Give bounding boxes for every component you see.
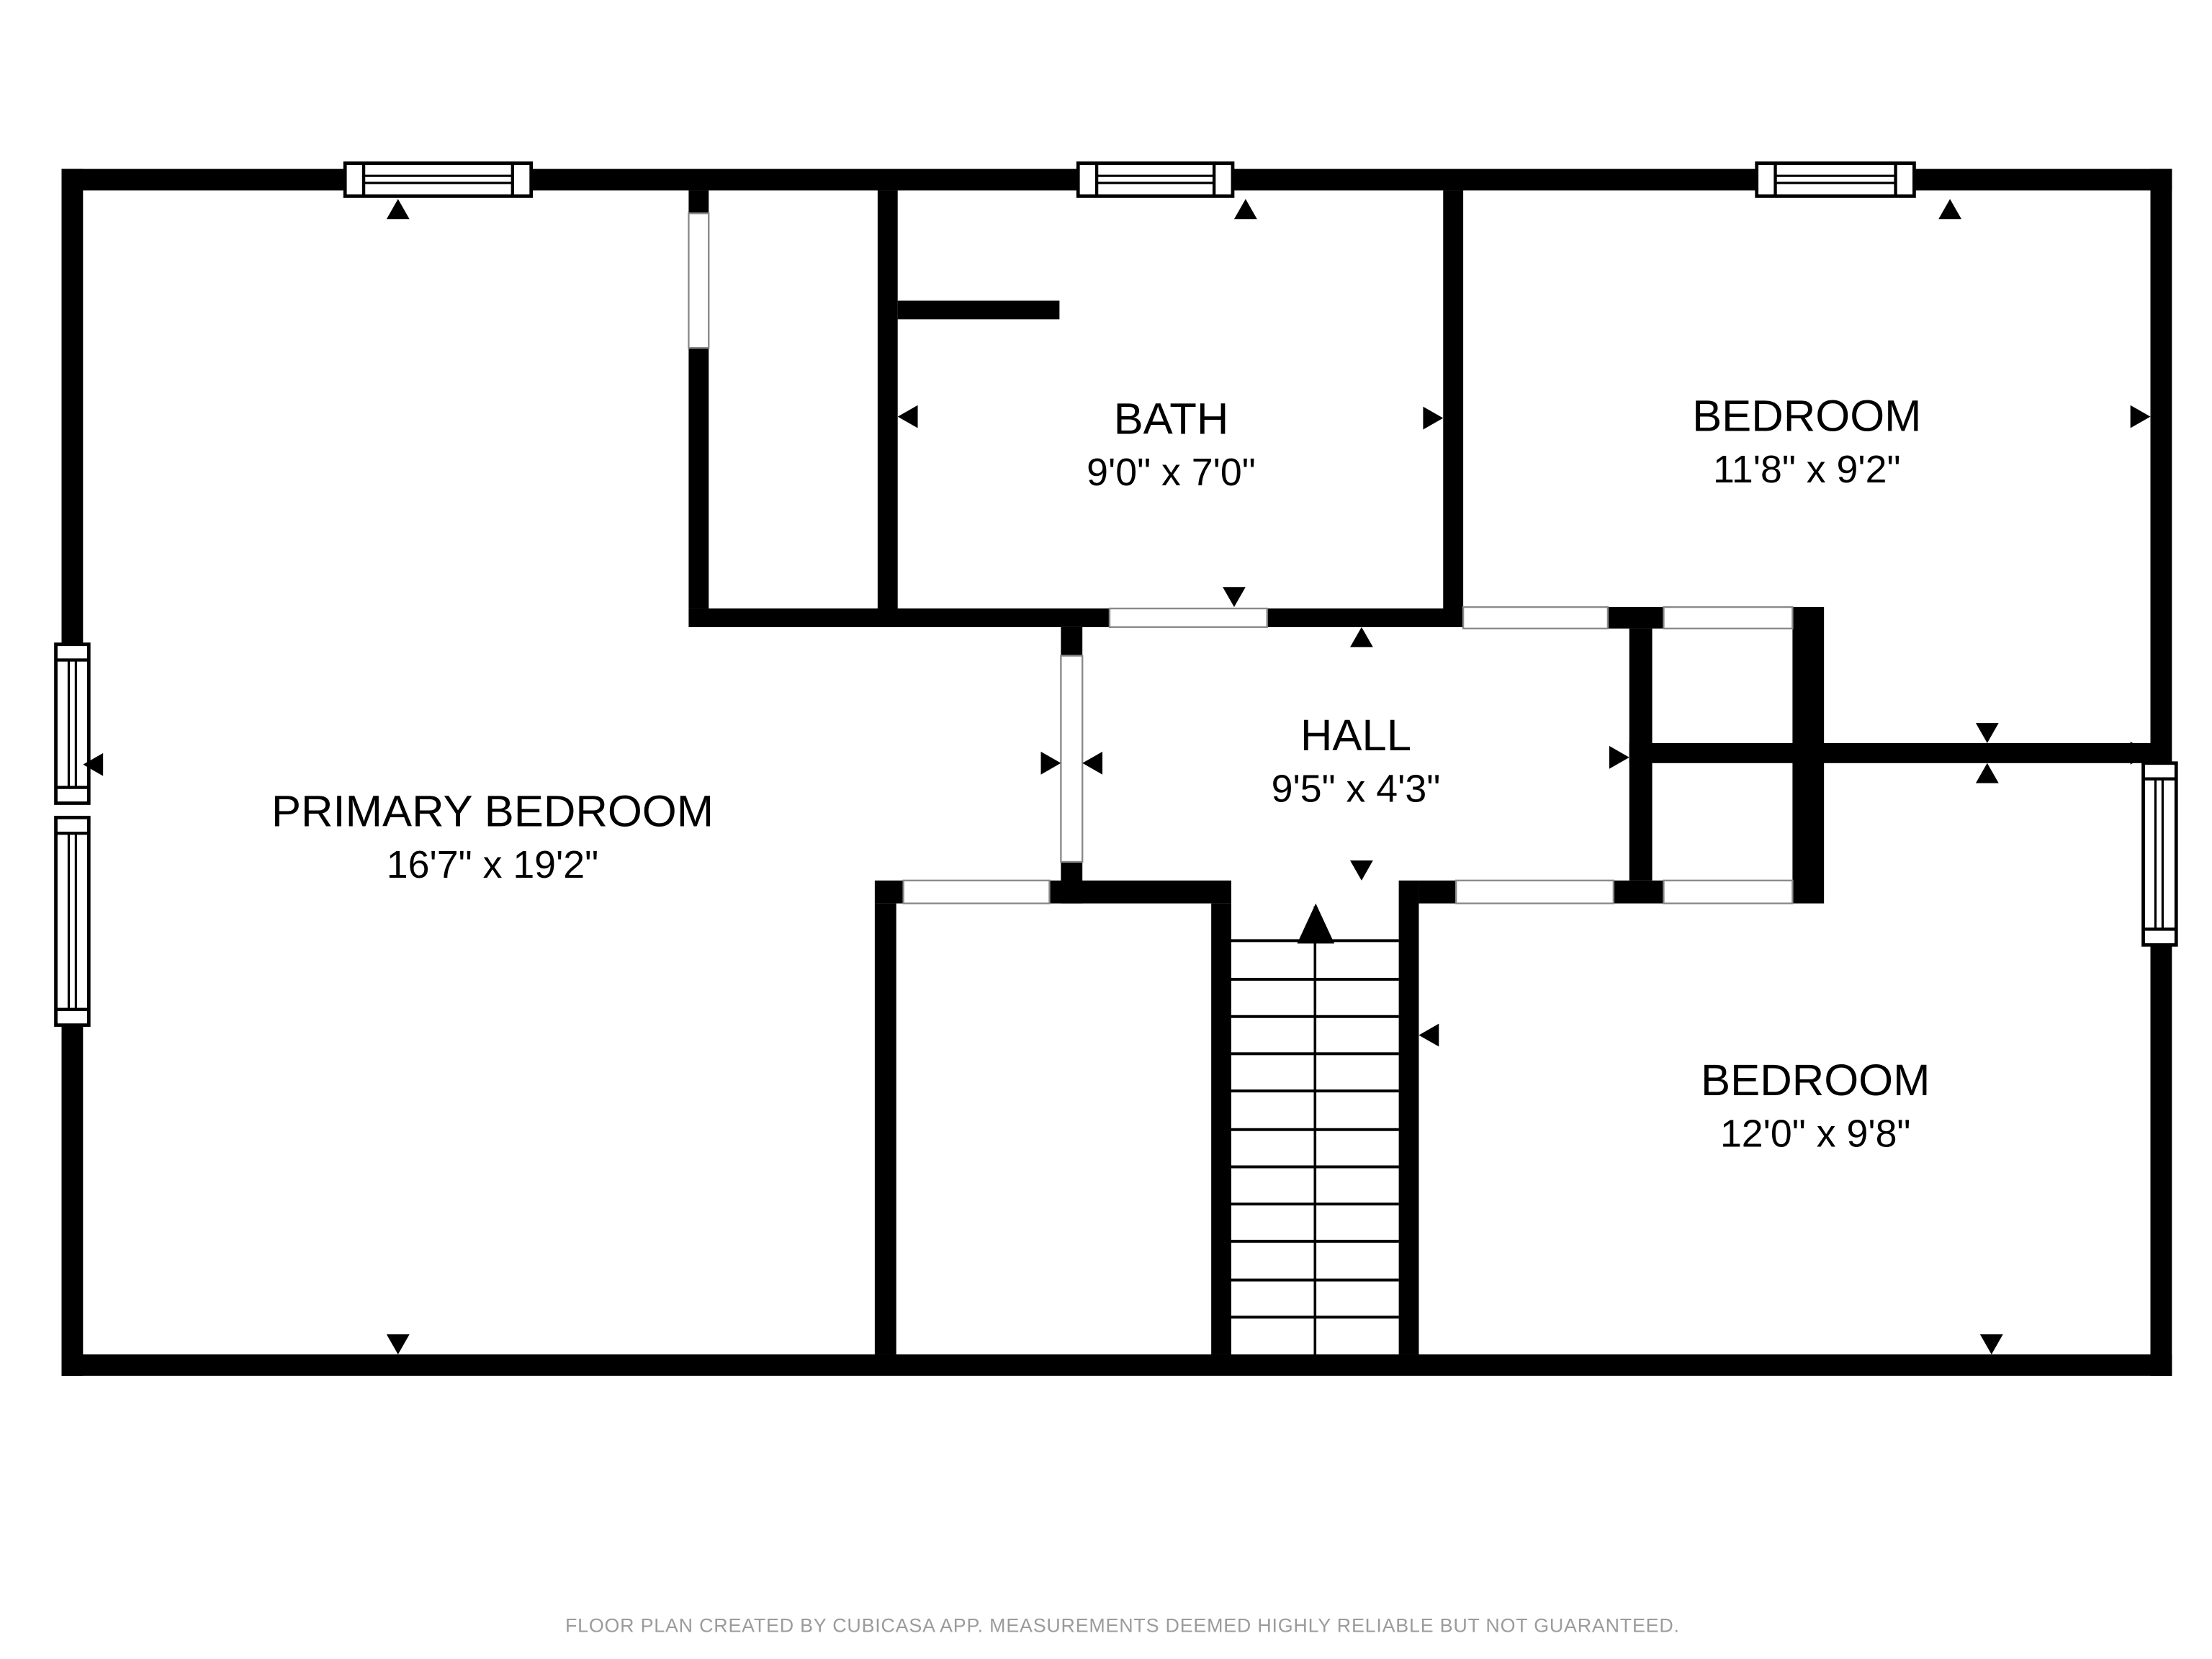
room-dims-bath: 9'0" x 7'0" — [1087, 451, 1256, 494]
door-openings — [688, 213, 1792, 903]
door-marker-icon — [1423, 407, 1443, 430]
closet1-door-opening — [688, 213, 709, 348]
door-marker-icon — [1223, 587, 1246, 607]
wall-bedrooms-divider — [1629, 743, 2151, 763]
wall-primary-door-jamb-top — [1061, 627, 1082, 656]
window-marker-icon — [1234, 199, 1257, 219]
wall-pier-bedroom1-closet — [1608, 607, 1664, 629]
closet-top-door-opening — [1663, 607, 1792, 629]
window-bedroom-bottom-right — [2144, 763, 2177, 945]
wall-stairwell-right — [1399, 881, 1419, 1354]
stairs-direction-arrow-icon — [1297, 904, 1334, 944]
window-frame — [56, 817, 89, 1025]
room-dims-bedroom-bottom: 12'0" x 9'8" — [1720, 1112, 1911, 1156]
wall-hall-bottom-b — [1049, 881, 1231, 904]
room-dims-hall: 9'5" x 4'3" — [1272, 767, 1441, 810]
door-marker-icon — [1041, 752, 1061, 775]
window-marker-icon — [387, 199, 410, 219]
bedroom-top-door-opening — [1463, 607, 1608, 629]
wall-marker-icon — [1976, 763, 1999, 783]
wall-hall-bottom-c — [1419, 881, 1456, 904]
room-label-primary-bedroom: PRIMARY BEDROOM — [271, 786, 714, 836]
room-label-bath: BATH — [1114, 394, 1229, 444]
room-label-bedroom-top: BEDROOM — [1692, 391, 1921, 441]
room-dims-bedroom-top: 11'8" x 9'2" — [1713, 448, 1901, 491]
door-marker-icon — [1350, 860, 1373, 881]
window-frame — [345, 163, 531, 197]
wall-marker-icon — [1419, 1024, 1439, 1047]
wall-bath-bedroom-divider — [1443, 190, 1463, 626]
window-bath — [1078, 163, 1233, 197]
window-frame — [2144, 763, 2177, 945]
wall-marker-icon — [1980, 1334, 2003, 1354]
window-primary-top — [345, 163, 531, 197]
wall-bath-nook-stub — [898, 301, 1060, 320]
door-marker-icon — [1350, 627, 1373, 647]
floor-plan-page: PRIMARY BEDROOM 16'7" x 19'2" BATH 9'0" … — [0, 0, 2212, 1659]
wall-closet1-bath-divider — [878, 190, 898, 626]
wall-marker-icon — [387, 1334, 410, 1354]
door-marker-icon — [1609, 746, 1629, 769]
wall-closet1-left-top-stub — [688, 190, 709, 213]
wall-pier-bedroom2-closet — [1614, 881, 1664, 904]
exterior-walls — [62, 169, 2172, 1376]
room-label-bedroom-bottom: BEDROOM — [1701, 1056, 1930, 1105]
wall-hall-bottom-a — [875, 881, 904, 904]
door-marker-icon — [1082, 752, 1102, 775]
closet-bottom-door-opening — [1663, 881, 1792, 904]
window-frame — [56, 644, 89, 804]
bath-door-opening — [1110, 608, 1267, 627]
window-frame — [1757, 163, 1915, 197]
footer-disclaimer: FLOOR PLAN CREATED BY CUBICASA APP. MEAS… — [565, 1615, 1680, 1637]
wall-bath-hall-left — [688, 608, 1110, 627]
wall-marker-icon — [2131, 405, 2151, 428]
wall-stairwell-left — [1211, 904, 1231, 1354]
wall-marker-icon — [1976, 723, 1999, 743]
window-frame — [1078, 163, 1233, 197]
primary-bedroom-door-opening — [1061, 656, 1082, 862]
window-bedroom-top — [1757, 163, 1915, 197]
bedroom-bottom-door-opening — [1456, 881, 1614, 904]
window-primary-left — [56, 644, 89, 1025]
walkin-closet-door-opening — [904, 881, 1050, 904]
door-marker-icon — [898, 405, 918, 428]
wall-closet1-left-lower — [688, 348, 709, 608]
plan-markers — [83, 199, 2150, 1354]
window-marker-icon — [1938, 199, 1961, 219]
wall-bath-hall-right — [1267, 608, 1463, 627]
wall-walkin-closet-left — [875, 904, 896, 1354]
wall-exterior-bottom — [62, 1354, 2172, 1376]
floor-plan-svg: PRIMARY BEDROOM 16'7" x 19'2" BATH 9'0" … — [0, 0, 2212, 1659]
staircase — [1231, 904, 1399, 1354]
room-dims-primary-bedroom: 16'7" x 19'2" — [387, 843, 598, 886]
room-label-hall: HALL — [1300, 711, 1411, 760]
